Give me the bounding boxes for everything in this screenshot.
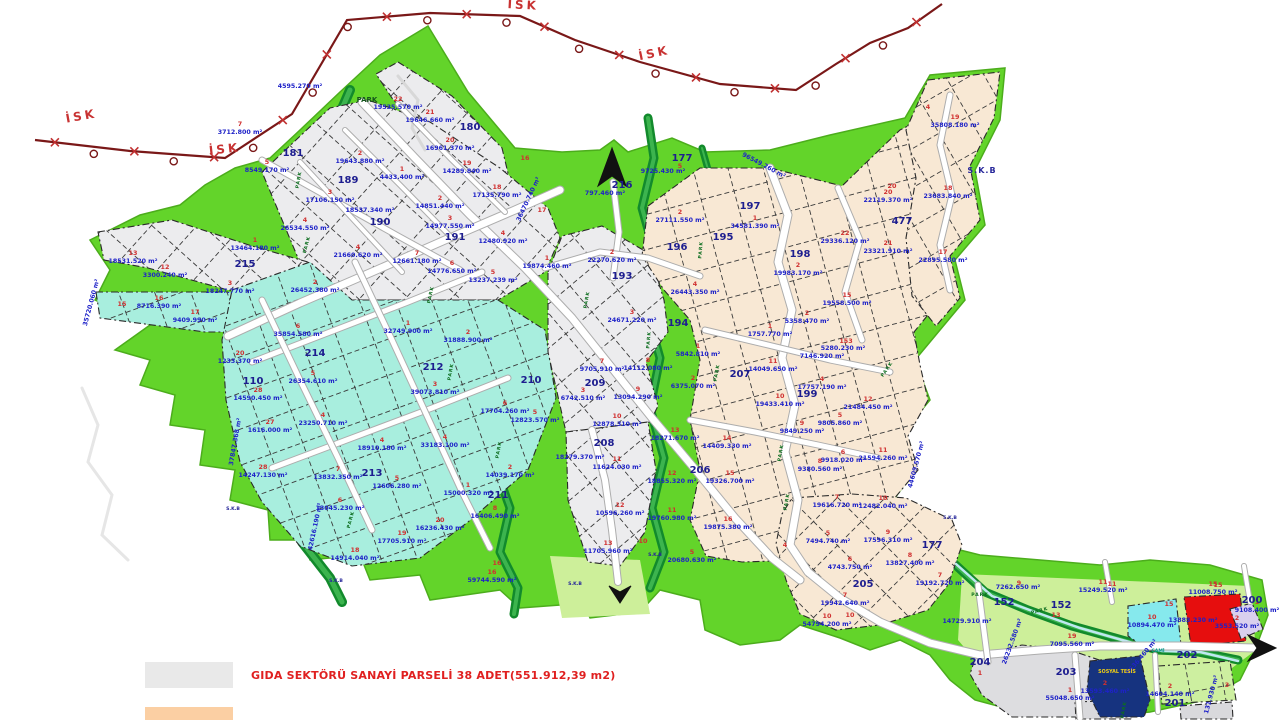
parcel-area-label: 21660.620 m² (334, 252, 383, 259)
parcel-number: 2 (691, 374, 695, 382)
parcel-area-label: 9409.990 m² (173, 317, 218, 324)
parcel-number: 9 (886, 528, 891, 536)
isk-circle-mark (250, 144, 257, 151)
block-number: 204 (970, 657, 991, 668)
parcel-area-label: 18910.180 m² (358, 445, 407, 452)
parcel-area-label: 12482.040 m² (859, 503, 908, 510)
block-number: 211 (488, 490, 509, 501)
parcel-area-label: 12606.280 m² (373, 483, 422, 490)
parcel-area-label: 7095.560 m² (1050, 641, 1095, 648)
parcel-number: 20 (888, 182, 897, 190)
block-number: 477 (892, 216, 913, 227)
block-number: 197 (740, 201, 761, 212)
parcel-number: 21 (884, 239, 893, 247)
parcel-line (0, 0, 155, 720)
block-number: 177 (922, 540, 943, 551)
parcel-number: 15 (1214, 581, 1223, 589)
parcel-number: 5 (838, 411, 842, 419)
legend-swatch-gray (145, 662, 233, 688)
parcel-number: 3 (328, 188, 332, 196)
parcel-area-label: 9108.400 m² (1235, 607, 1280, 614)
parcel-number: 3 (630, 308, 634, 316)
parcel-number: 4 (783, 541, 788, 549)
parcel-number: 20 (436, 516, 445, 524)
parcel-number: 153 (839, 337, 852, 345)
parcel-number: 5 (491, 268, 495, 276)
parcel-area-label: 54794.200 m² (803, 621, 852, 628)
parcel-area-label: 19192.720 m² (916, 580, 965, 587)
block-number: 189 (338, 175, 359, 186)
parcel-number: 3 (228, 279, 232, 287)
parcel-area-label: 6742.510 m² (561, 395, 606, 402)
parcel-area-label: 797.460 m² (585, 190, 625, 197)
parcel-number: 11 (769, 357, 778, 365)
parcel-area-label: 20680.630 m² (668, 557, 717, 564)
parcel-area-label: 19616.720 m² (813, 502, 862, 509)
parcel-area-label: 23321.910 m² (864, 248, 913, 255)
parcel-number: 27 (266, 418, 275, 426)
parcel-number: 17 (939, 248, 948, 256)
parcel-area-label: 13832.350 m² (314, 474, 363, 481)
isk-x-mark (540, 23, 548, 31)
parcel-area-label: 9805.860 m² (818, 420, 863, 427)
parcel-number: 28 (259, 463, 268, 471)
isk-x-mark (323, 50, 331, 58)
parcel-area-label: 24671.220 m² (608, 317, 657, 324)
parcel-number: 12 (668, 469, 677, 477)
parcel-number: 8 (646, 356, 651, 364)
stream (82, 388, 128, 560)
parcel-number: 4 (820, 375, 825, 383)
parcel-area-label: 13593.460 m² (1081, 688, 1130, 695)
parcel-number: 10 (639, 537, 648, 545)
parcel-area-label: 18271.670 m² (651, 435, 700, 442)
parcel-area-label: 7494.740 m² (806, 538, 851, 545)
parcel-number: 13 (129, 249, 138, 257)
parcel-number: 3 (1225, 681, 1229, 689)
parcel-number: 16 (493, 559, 502, 567)
parcel-area-label: 17106.150 m² (306, 197, 355, 204)
parcel-area-label: 33183.100 m² (421, 442, 470, 449)
parcel-number: 10 (776, 392, 785, 400)
isk-circle-mark (344, 23, 351, 30)
parcel-number: 11 (1108, 580, 1117, 588)
parcel-number: 16 (521, 154, 530, 162)
isk-circle-mark (424, 17, 431, 24)
parcel-area-label: 11008.750 m² (1189, 589, 1238, 596)
parcel-area-label: 21594.260 m² (859, 455, 908, 462)
skb-label-large: S.K.B (967, 166, 996, 175)
parcel-area-label: 17704.260 m² (481, 408, 530, 415)
parcel-number: 1 (400, 165, 404, 173)
parcel-area-label: 17135.790 m² (473, 192, 522, 199)
parcel-number: 7 (600, 357, 604, 365)
parcel-number: 10 (823, 612, 832, 620)
parcel-area-label: 15000.320 m² (444, 490, 493, 497)
parcel-number: 6 (503, 399, 508, 407)
parcel-area-label: 31888.900 m² (444, 337, 493, 344)
parcel-area-label: 22270.620 m² (588, 257, 637, 264)
parcel-area-label: 13883.230 m² (1169, 617, 1218, 624)
parcel-number: 9 (800, 419, 805, 427)
parcel-number: 4 (501, 229, 506, 237)
parcel-number: 15 (843, 291, 852, 299)
parcel-area-label: 26534.550 m² (281, 225, 330, 232)
parcel-area-label: 14247.130 m² (239, 472, 288, 479)
parcel-area-label: 9380.560 m² (798, 466, 843, 473)
parcel-number: 15 (118, 300, 127, 308)
parcel-area-label: 19646.660 m² (406, 117, 455, 124)
parcel-number: 1 (1068, 686, 1072, 694)
special-label-sosyal-tesi̇s: SOSYAL TESİS (1098, 668, 1136, 675)
isk-circle-mark (812, 82, 819, 89)
skb-label: S.K.B (943, 515, 957, 521)
block-number: 214 (305, 348, 326, 359)
parcel-number: 5 (395, 474, 399, 482)
legend-label-gida: GIDA SEKTÖRÜ SANAYİ PARSELİ 38 ADET(551.… (251, 669, 615, 682)
parcel-number: 19 (398, 529, 407, 537)
parcel-area-label: 14604.140 m² (1146, 691, 1195, 698)
parcel-number: 20 (236, 349, 245, 357)
parcel-number: 12 (864, 395, 873, 403)
parcel-number: 9 (1017, 579, 1022, 587)
parcel-area-label: 15249.520 m² (1079, 587, 1128, 594)
parcel-number: 22 (841, 229, 850, 237)
parcel-number: 4 (303, 216, 308, 224)
parcel-area-label: 3712.800 m² (218, 129, 263, 136)
parcel-number: 1 (753, 214, 757, 222)
parcel-area-label: 23250.710 m² (299, 420, 348, 427)
parcel-area-label: 10596.260 m² (596, 510, 645, 517)
parcel-area-label: 19558.500 m² (823, 300, 872, 307)
parcel-area-label: 12878.310 m² (593, 421, 642, 428)
block-number: 194 (668, 318, 689, 329)
parcel-area-label: 14977.550 m² (426, 223, 475, 230)
isk-circle-mark (170, 158, 177, 165)
parcel-number: 7 (835, 493, 839, 501)
parcel-number: 4 (693, 280, 698, 288)
parcel-number: 11 (613, 455, 622, 463)
parcel-area-label: 21484.450 m² (844, 404, 893, 411)
skb-label: S.K.B (226, 506, 240, 512)
parcel-number: 12 (616, 501, 625, 509)
parcel-number: 7 (938, 571, 942, 579)
parcel-area-label: 14776.650 m² (428, 268, 477, 275)
parcel-area-label: 1757.770 m² (748, 331, 793, 338)
parcel-area-label: 14112.080 m² (624, 365, 673, 372)
parcel-number: 18 (493, 183, 502, 191)
parcel-area-label: 32749.900 m² (384, 328, 433, 335)
special-label-park: PARK (357, 96, 378, 104)
isk-label: İSK (208, 139, 241, 157)
parcel-area-label: 23683.840 m² (924, 193, 973, 200)
parcel-area-label: 19983.170 m² (774, 270, 823, 277)
parcel-area-label: 14914.040 m² (331, 555, 380, 562)
block-number: 203 (1056, 667, 1077, 678)
parcel-area-label: 11705.960 m² (584, 548, 633, 555)
parcel-area-label: 18855.320 m² (648, 478, 697, 485)
parcel-area-label: 4743.750 m² (828, 564, 873, 571)
isk-label: İSK (64, 105, 98, 125)
parcel-area-label: 5842.810 m² (676, 351, 721, 358)
block-number: 110 (243, 376, 264, 387)
block-number: 152 (994, 597, 1015, 608)
parcel-number: 1 (696, 342, 700, 350)
parcel-number: 7 (238, 120, 242, 128)
block-number: 191 (445, 232, 466, 243)
parcel-number: 1 (545, 254, 549, 262)
parcel-area-label: 27111.550 m² (656, 217, 705, 224)
legend-row-gida: GIDA SEKTÖRÜ SANAYİ PARSELİ 38 ADET(551.… (145, 662, 615, 688)
parcel-area-label: 29336.120 m² (821, 238, 870, 245)
parcel-number: 8 (493, 504, 498, 512)
block-number: 196 (667, 242, 688, 253)
parcel-number: 4 (356, 243, 361, 251)
parcel-area-label: 35808.180 m² (931, 122, 980, 129)
isk-circle-mark (90, 150, 97, 157)
parcel-number: 4 (443, 433, 448, 441)
parcel-number: 2 (1168, 682, 1172, 690)
parcel-area-label: 9849.250 m² (780, 428, 825, 435)
parcel-number: 2 (1103, 679, 1107, 687)
parcel-number: 20 (446, 136, 455, 144)
parcel-number: 11 (1099, 578, 1108, 586)
parcel-number: 6 (338, 496, 343, 504)
parcel-area-label: 12480.920 m² (479, 238, 528, 245)
parcel-number: 13 (604, 539, 613, 547)
parcel-area-label: 18531.520 m² (109, 258, 158, 265)
parcel-area-label: 19433.410 m² (756, 401, 805, 408)
skb-label: S.K.B (568, 581, 582, 587)
parcel-area-label: 1233.370 m² (218, 358, 263, 365)
parcel-number: 6 (848, 555, 853, 563)
parcel-number: 19 (463, 159, 472, 167)
block-number: 152 (1051, 600, 1072, 611)
block-number: 177 (672, 153, 693, 164)
block-number: 207 (730, 369, 751, 380)
parcel-number: 2 (796, 261, 800, 269)
parcel-area-label: 8716.390 m² (137, 303, 182, 310)
parcel-number: 19 (951, 113, 960, 121)
parcel-area-label: 12661.180 m² (393, 258, 442, 265)
parcel-number: 2 (805, 309, 809, 317)
parcel-area-label: 19326.700 m² (706, 478, 755, 485)
isk-label: İSK (637, 42, 671, 63)
block-number: 209 (585, 378, 606, 389)
parcel-area-label: 14049.650 m² (749, 366, 798, 373)
parcel-number: 5 (826, 529, 830, 537)
parcel-area-label: 17596.310 m² (864, 537, 913, 544)
parcel-area-label: 19643.880 m² (336, 158, 385, 165)
parcel-area-label: 13237.239 m² (469, 277, 518, 284)
block-number: 215 (235, 259, 256, 270)
block-number: 195 (713, 232, 734, 243)
parcel-number: 2 (358, 149, 362, 157)
parcel-number: 8 (908, 551, 913, 559)
isk-x-mark (841, 54, 849, 62)
parcel-number: 19 (1068, 632, 1077, 640)
isk-circle-mark (503, 19, 510, 26)
parcel-area-label: 13045.230 m² (316, 505, 365, 512)
isk-x-mark (279, 116, 287, 124)
parcel-number: 15 (1165, 600, 1174, 608)
block-number: 216 (612, 180, 633, 191)
parcel-number: 11 (879, 446, 888, 454)
parcel-number: 1 (978, 669, 982, 677)
parcel-number: 5 (311, 369, 315, 377)
parcel-area-label: 7146.920 m² (800, 353, 845, 360)
parcel-number: 10 (1148, 613, 1157, 621)
pale-green-patch (550, 556, 650, 618)
parcel-number: 18 (944, 184, 953, 192)
block-number: 193 (612, 271, 633, 282)
block-number: 180 (460, 122, 481, 133)
parcel-area-label: 16236.430 m² (416, 525, 465, 532)
block-number: 205 (853, 579, 874, 590)
isk-circle-mark (652, 70, 659, 77)
isk-circle-mark (575, 45, 582, 52)
parcel-area-label: 11624.030 m² (593, 464, 642, 471)
parcel-number: 8 (818, 457, 823, 465)
parcel-area-label: 4433.400 m² (380, 174, 425, 181)
parcel-area-label: 18247.770 m² (206, 288, 255, 295)
parcel-area-label: 16406.490 m² (471, 513, 520, 520)
parcel-number: 2 (678, 208, 682, 216)
parcel-number: 1 (768, 322, 772, 330)
parcel-area-label: 26354.610 m² (289, 378, 338, 385)
parcel-area-label: 5280.230 m² (821, 345, 866, 352)
parcel-number: 2 (508, 463, 512, 471)
parcel-number: 6 (841, 448, 846, 456)
parcel-area-label: 3300.240 m² (143, 272, 188, 279)
parcel-area-label: 18279.370 m² (556, 454, 605, 461)
parcel-area-label: 14729.910 m² (943, 618, 992, 625)
parcel-area-label: 6375.070 m² (671, 383, 716, 390)
legend-row-2 (145, 707, 251, 720)
parcel-area-label: 14409.330 m² (703, 443, 752, 450)
parcel-area-label: 14289.840 m² (443, 168, 492, 175)
parcel-area-label: 39073.810 m² (411, 389, 460, 396)
parcel-number: 9 (636, 385, 641, 393)
parcel-area-label: 35854.580 m² (274, 331, 323, 338)
parcel-area-label: 19875.380 m² (704, 524, 753, 531)
parcel-number: 12 (161, 263, 170, 271)
parcel-number: 16 (488, 568, 497, 576)
parcel-number: 2 (438, 194, 442, 202)
block-number: 206 (690, 465, 711, 476)
isk-x-mark (912, 18, 920, 26)
parcel-area-label: 26443.350 m² (671, 289, 720, 296)
parcel-number: 7 (843, 591, 847, 599)
parcel-area-label: 19942.640 m² (821, 600, 870, 607)
parcel-area-label: 14590.450 m² (234, 395, 283, 402)
skb-label: S.K.B (329, 578, 343, 584)
block-number: 198 (790, 249, 811, 260)
parcel-number: 2 (1235, 614, 1239, 622)
parcel-area-label: 13094.290 m² (614, 394, 663, 401)
parcel-number: 4 (321, 411, 326, 419)
parcel-area-label: 34581.390 m² (731, 223, 780, 230)
parcel-number: 13 (671, 426, 680, 434)
block-number: 212 (423, 362, 444, 373)
parcel-number: 13 (1052, 611, 1061, 619)
block-number: 181 (283, 148, 304, 159)
block-number: 200 (1242, 595, 1263, 606)
parcel-area-label: 3553.520 m² (1215, 623, 1260, 630)
parcel-number: 22 (394, 95, 403, 103)
parcel-area-label: 19760.980 m² (648, 515, 697, 522)
block-number: 201 (1165, 698, 1186, 709)
parcel-area-label: 1616.000 m² (248, 427, 293, 434)
parcel-area-label: 17705.910 m² (378, 538, 427, 545)
skb-label: S.K.B (648, 552, 662, 558)
parcel-number: 2 (466, 328, 470, 336)
parcel-number: 1 (466, 481, 470, 489)
parcel-area-label: 22895.580 m² (919, 257, 968, 264)
parcel-number: 5 (533, 408, 537, 416)
parcel-number: 11 (668, 506, 677, 514)
parcel-number: 5 (690, 548, 694, 556)
legend-swatch-orange (145, 707, 233, 720)
parcel-number: 10 (846, 611, 855, 619)
parcel-number: 4 (380, 436, 385, 444)
parcel-area-label: 22119.370 m² (864, 197, 913, 204)
parcel-number: 2 (313, 278, 317, 286)
parcel-area-label: 4595.270 m² (278, 83, 323, 90)
park-label: PARK (971, 592, 989, 598)
parcel-number: 10 (613, 412, 622, 420)
parcel-number: 10 (879, 494, 888, 502)
isk-label: İSK (507, 0, 539, 13)
block-number: 208 (594, 438, 615, 449)
parcel-number: 15 (726, 469, 735, 477)
parcel-number: 4 (926, 103, 931, 111)
parcel-area-label: 18537.340 m² (346, 207, 395, 214)
parcel-area-label: 13464.180 m² (231, 245, 280, 252)
parcel-number: 1 (253, 236, 257, 244)
parcel-number: 2 (610, 248, 614, 256)
parcel-area-label: 19874.460 m² (523, 263, 572, 270)
special-label-cami̇: CAMİ (1151, 647, 1164, 654)
parcel-number: 7 (336, 465, 340, 473)
parcel-number: 6 (450, 259, 455, 267)
zoning-map-page: PARKPARKPARKPARKPARKPARKPARKPARKPARKPARK… (0, 0, 1280, 720)
parcel-number: 14 (723, 434, 732, 442)
parcel-number: 28 (254, 386, 263, 394)
parcel-number: 6 (296, 322, 301, 330)
parcel-area-label: 14851.440 m² (416, 203, 465, 210)
isk-circle-mark (309, 89, 316, 96)
parcel-number: 16 (724, 515, 733, 523)
parcel-area-label: 13827.400 m² (886, 560, 935, 567)
parcel-area-label: 55048.650 m² (1046, 695, 1095, 702)
parcel-area-label: 16961.370 m² (426, 145, 475, 152)
parcel-number: 7 (415, 249, 419, 257)
block-number: 199 (797, 389, 818, 400)
block-number: 210 (521, 375, 542, 386)
block-number: 213 (362, 468, 383, 479)
parcel-area-label: 9705.910 m² (580, 366, 625, 373)
region-navy-parcel (1087, 656, 1150, 717)
parcel-number: 3 (433, 380, 437, 388)
isk-circle-mark (879, 42, 886, 49)
parcel-area-label: 12823.570 m² (511, 417, 560, 424)
block-number: 190 (370, 217, 391, 228)
parcel-area-label: 19535.570 m² (374, 104, 423, 111)
parcel-area-label: 8549.170 m² (245, 167, 290, 174)
parcel-area-label: 59744.590 m² (468, 577, 517, 584)
parcel-number: 17 (191, 308, 200, 316)
